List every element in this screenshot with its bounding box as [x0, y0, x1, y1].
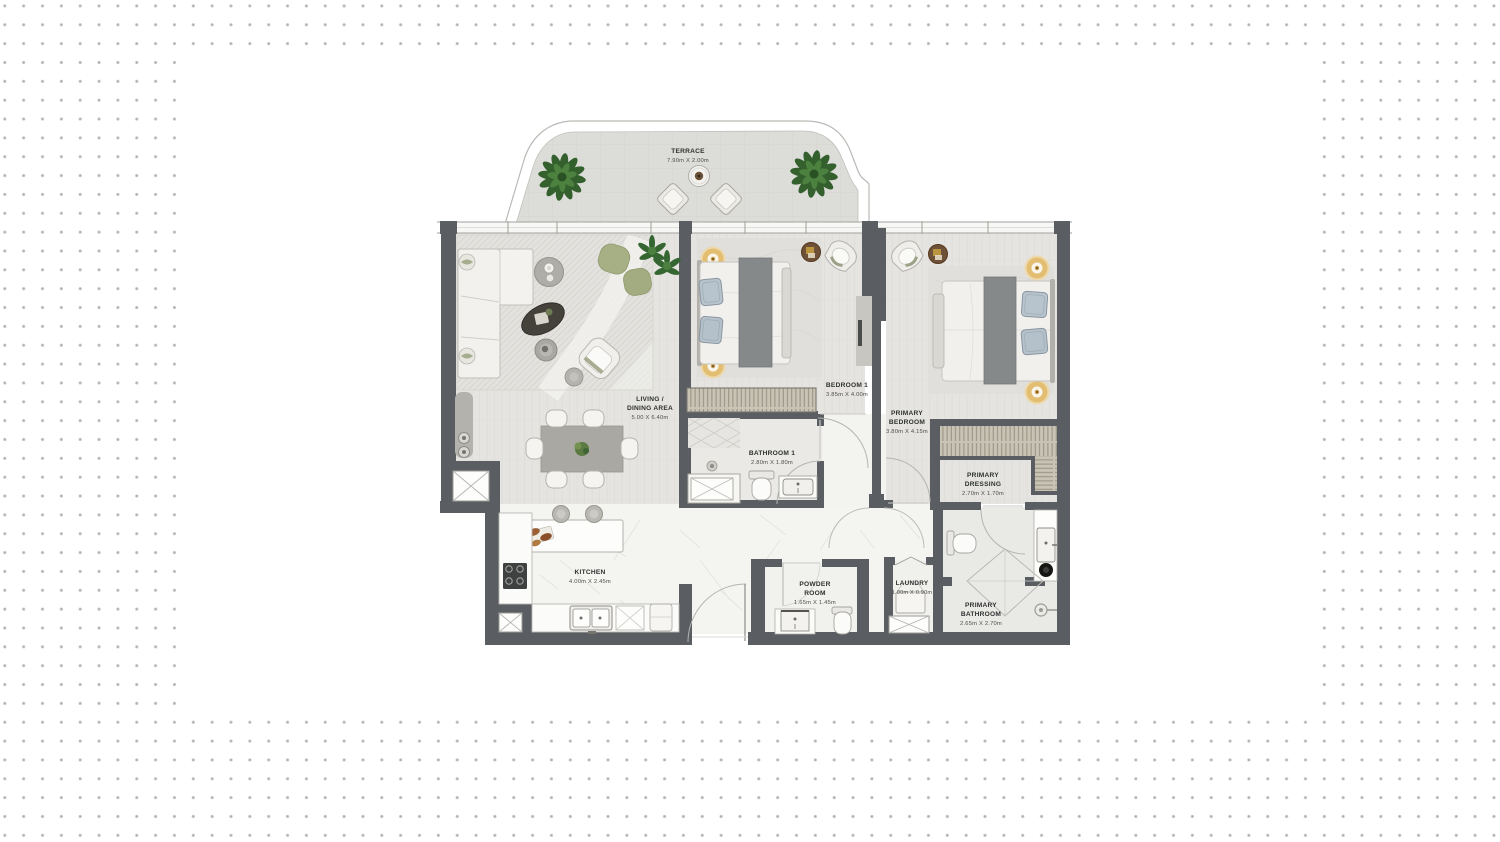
svg-text:2.80m X 1.80m: 2.80m X 1.80m: [751, 460, 793, 466]
svg-text:LIVING /: LIVING /: [636, 396, 664, 403]
svg-text:3.85m X 4.00m: 3.85m X 4.00m: [826, 392, 868, 398]
svg-text:1.00m X 0.90m: 1.00m X 0.90m: [892, 590, 933, 596]
svg-text:KITCHEN: KITCHEN: [574, 569, 605, 576]
svg-text:4.00m X 2.45m: 4.00m X 2.45m: [569, 579, 611, 585]
svg-text:BEDROOM 1: BEDROOM 1: [826, 382, 868, 389]
svg-text:7.90m X 2.00m: 7.90m X 2.00m: [667, 158, 709, 164]
svg-text:1.65m X 1.45m: 1.65m X 1.45m: [794, 600, 836, 606]
svg-text:PRIMARY: PRIMARY: [967, 472, 999, 479]
svg-text:DRESSING: DRESSING: [965, 481, 1001, 488]
svg-text:ROOM: ROOM: [804, 590, 826, 597]
svg-text:PRIMARY: PRIMARY: [965, 602, 997, 609]
svg-text:5.00 X 6.40m: 5.00 X 6.40m: [632, 415, 669, 421]
svg-text:DINING AREA: DINING AREA: [627, 405, 673, 412]
svg-text:2.70m X 1.70m: 2.70m X 1.70m: [962, 491, 1004, 497]
svg-text:POWDER: POWDER: [799, 581, 830, 588]
svg-text:BEDROOM: BEDROOM: [889, 419, 925, 426]
svg-text:LAUNDRY: LAUNDRY: [896, 580, 929, 587]
svg-text:PRIMARY: PRIMARY: [891, 410, 923, 417]
svg-text:2.65m X 2.70m: 2.65m X 2.70m: [960, 621, 1002, 627]
svg-text:BATHROOM: BATHROOM: [961, 611, 1002, 618]
svg-text:TERRACE: TERRACE: [671, 148, 705, 155]
svg-text:BATHROOM 1: BATHROOM 1: [749, 450, 795, 457]
svg-text:3.80m X 4.15m: 3.80m X 4.15m: [886, 429, 928, 435]
